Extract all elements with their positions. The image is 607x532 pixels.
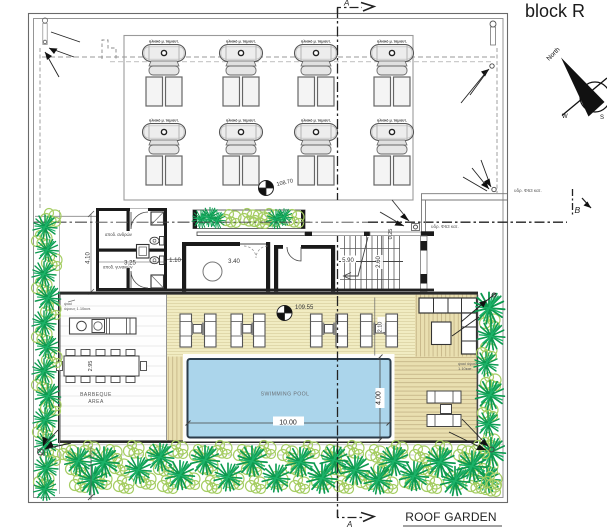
svg-text:ύψους 1.10κατ.: ύψους 1.10κατ. [64, 306, 91, 311]
svg-text:AREA: AREA [88, 399, 104, 405]
svg-text:ηλιακό μ. ταμιευτ.: ηλιακό μ. ταμιευτ. [301, 40, 331, 44]
svg-text:ηλιακό μ. ταμιευτ.: ηλιακό μ. ταμιευτ. [149, 40, 179, 44]
svg-text:ηλιακό μ. ταμιευτ.: ηλιακό μ. ταμιευτ. [226, 40, 256, 44]
svg-text:ηλιακό μ. ταμιευτ.: ηλιακό μ. ταμιευτ. [377, 40, 407, 44]
svg-text:2.95: 2.95 [88, 361, 94, 372]
svg-text:W: W [562, 114, 568, 120]
svg-text:ηλιακό μ. ταμιευτ.: ηλιακό μ. ταμιευτ. [226, 119, 256, 123]
svg-text:5.90: 5.90 [342, 258, 354, 264]
svg-text:3.40: 3.40 [228, 259, 240, 265]
svg-text:A: A [346, 520, 352, 529]
svg-text:10.00: 10.00 [279, 420, 297, 427]
svg-text:SWIMMING POOL: SWIMMING POOL [261, 392, 310, 398]
svg-text:A: A [343, 0, 349, 8]
svg-text:αποδ. ανδρών: αποδ. ανδρών [105, 232, 132, 237]
svg-text:ηλιακό μ. ταμιευτ.: ηλιακό μ. ταμιευτ. [149, 119, 179, 123]
svg-text:109.55: 109.55 [295, 305, 314, 311]
svg-text:3.25: 3.25 [124, 261, 136, 267]
svg-text:ηλιακό μ. ταμιευτ.: ηλιακό μ. ταμιευτ. [377, 119, 407, 123]
svg-text:0.25: 0.25 [388, 229, 394, 240]
svg-text:4.10: 4.10 [86, 252, 92, 264]
svg-text:υδρ. Φ63 κατ.: υδρ. Φ63 κατ. [431, 224, 459, 229]
svg-text:block R: block R [525, 1, 585, 21]
svg-text:1.10κατ.: 1.10κατ. [458, 366, 473, 371]
svg-text:B: B [575, 205, 581, 215]
svg-text:BARBEQUE: BARBEQUE [80, 392, 112, 398]
svg-text:2.60: 2.60 [376, 256, 382, 268]
svg-text:4.00: 4.00 [376, 391, 383, 405]
svg-text:ηλιακό μ. ταμιευτ.: ηλιακό μ. ταμιευτ. [301, 119, 331, 123]
svg-text:1.10: 1.10 [169, 258, 181, 264]
svg-text:2.10: 2.10 [378, 322, 384, 333]
svg-text:ROOF GARDEN: ROOF GARDEN [405, 510, 497, 524]
svg-text:S: S [600, 115, 604, 121]
svg-text:υδρ. Φ63 κατ.: υδρ. Φ63 κατ. [514, 188, 542, 193]
